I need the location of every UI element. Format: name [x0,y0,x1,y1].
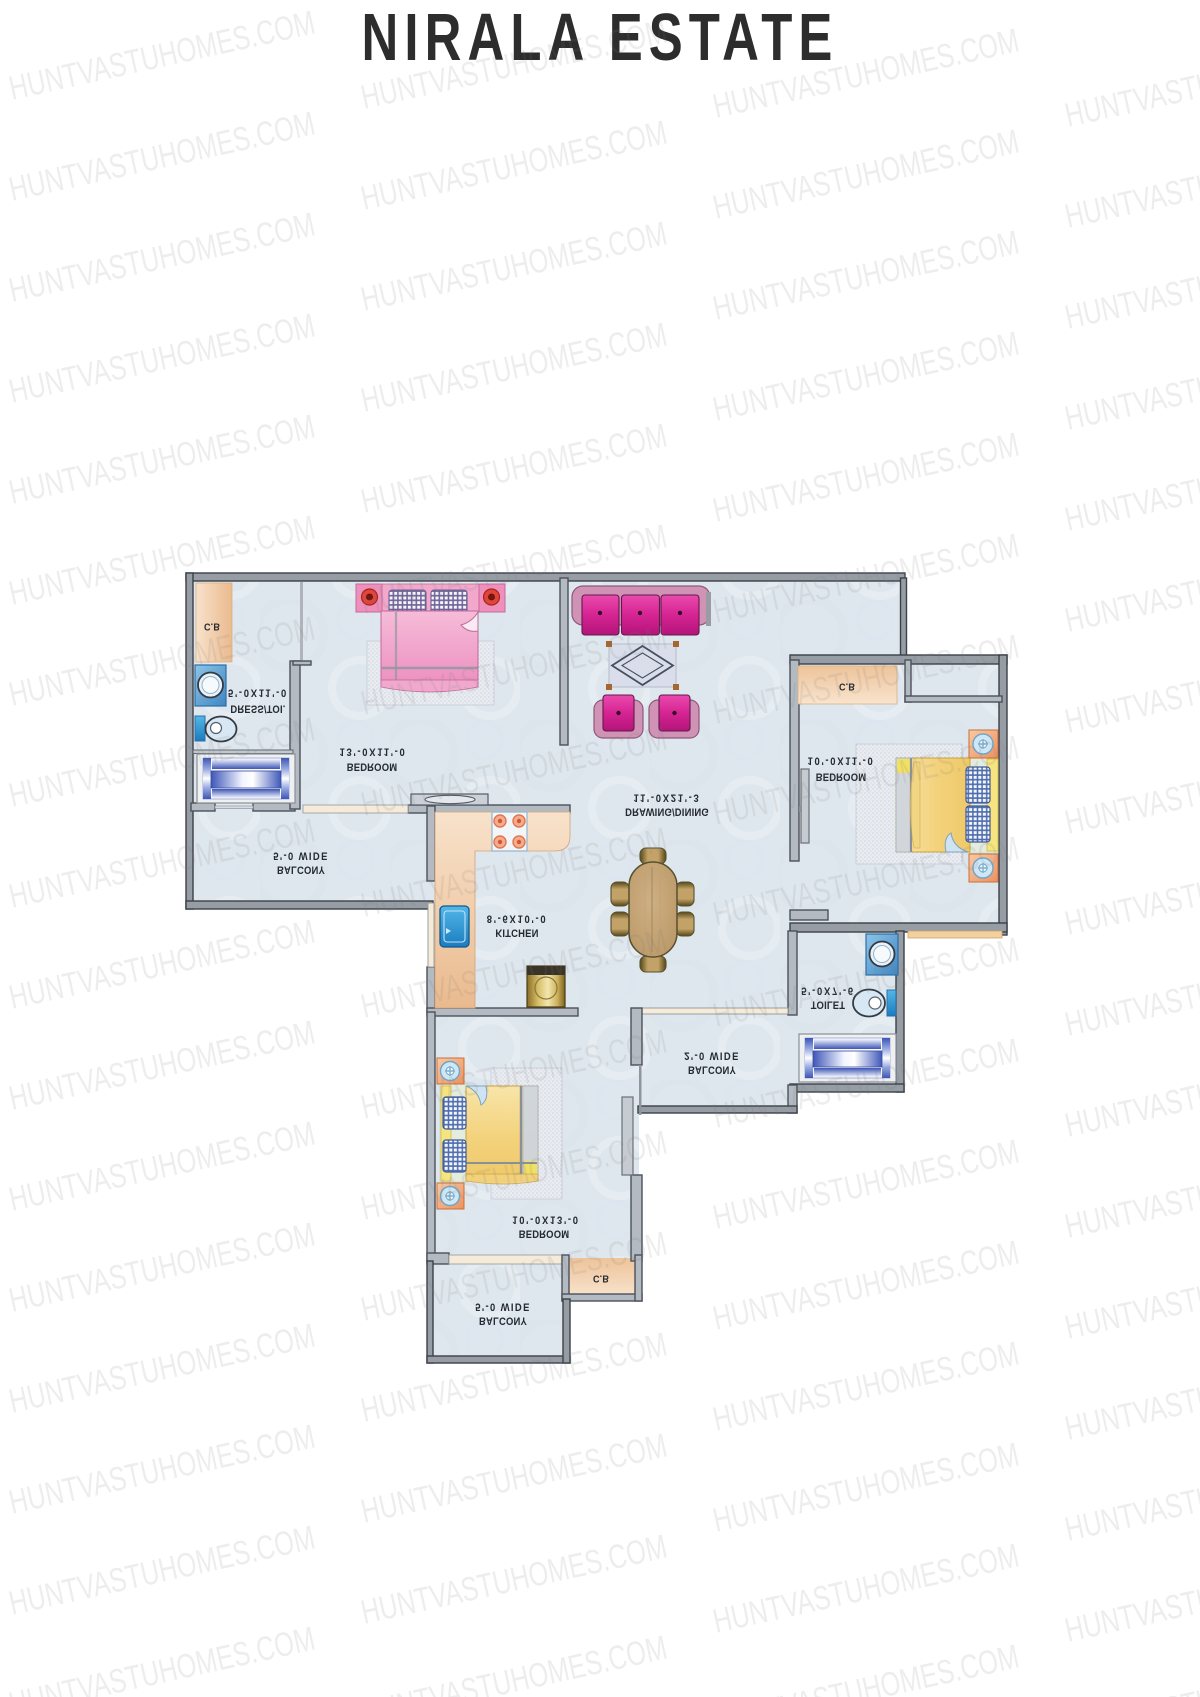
svg-text:HUNTVASTUHOMES.COM: HUNTVASTUHOMES.COM [358,1528,671,1632]
svg-text:HUNTVASTUHOMES.COM: HUNTVASTUHOMES.COM [1062,1041,1200,1145]
svg-text:HUNTVASTUHOMES.COM: HUNTVASTUHOMES.COM [6,307,319,411]
svg-text:BEDROOM: BEDROOM [347,760,398,772]
svg-text:HUNTVASTUHOMES.COM: HUNTVASTUHOMES.COM [6,4,319,108]
svg-text:11'-0X21'-3: 11'-0X21'-3 [633,791,700,803]
svg-text:HUNTVASTUHOMES.COM: HUNTVASTUHOMES.COM [358,417,671,521]
svg-text:DRESS/TOI.: DRESS/TOI. [230,702,285,714]
svg-text:HUNTVASTUHOMES.COM: HUNTVASTUHOMES.COM [710,1436,1023,1540]
svg-text:HUNTVASTUHOMES.COM: HUNTVASTUHOMES.COM [710,1234,1023,1338]
svg-text:HUNTVASTUHOMES.COM: HUNTVASTUHOMES.COM [1062,940,1200,1044]
svg-text:HUNTVASTUHOMES.COM: HUNTVASTUHOMES.COM [1062,637,1200,741]
svg-text:HUNTVASTUHOMES.COM: HUNTVASTUHOMES.COM [1062,738,1200,842]
svg-text:HUNTVASTUHOMES.COM: HUNTVASTUHOMES.COM [6,105,319,209]
svg-text:HUNTVASTUHOMES.COM: HUNTVASTUHOMES.COM [710,224,1023,328]
svg-text:HUNTVASTUHOMES.COM: HUNTVASTUHOMES.COM [710,123,1023,227]
svg-text:HUNTVASTUHOMES.COM: HUNTVASTUHOMES.COM [1062,1546,1200,1650]
svg-text:8'-6X10'-0: 8'-6X10'-0 [487,912,548,924]
svg-text:HUNTVASTUHOMES.COM: HUNTVASTUHOMES.COM [1062,1344,1200,1448]
svg-text:2'-0 WIDE: 2'-0 WIDE [684,1049,740,1061]
svg-text:HUNTVASTUHOMES.COM: HUNTVASTUHOMES.COM [1062,31,1200,135]
svg-text:HUNTVASTUHOMES.COM: HUNTVASTUHOMES.COM [1062,334,1200,438]
svg-text:5'-0X11'-0: 5'-0X11'-0 [228,686,288,698]
svg-text:HUNTVASTUHOMES.COM: HUNTVASTUHOMES.COM [6,1418,319,1522]
svg-text:HUNTVASTUHOMES.COM: HUNTVASTUHOMES.COM [6,1620,319,1697]
svg-text:HUNTVASTUHOMES.COM: HUNTVASTUHOMES.COM [1062,839,1200,943]
svg-text:HUNTVASTUHOMES.COM: HUNTVASTUHOMES.COM [1062,233,1200,337]
svg-text:HUNTVASTUHOMES.COM: HUNTVASTUHOMES.COM [710,1133,1023,1237]
svg-text:KITCHEN: KITCHEN [495,926,538,938]
svg-text:BEDROOM: BEDROOM [519,1227,570,1239]
svg-text:HUNTVASTUHOMES.COM: HUNTVASTUHOMES.COM [6,408,319,512]
svg-text:HUNTVASTUHOMES.COM: HUNTVASTUHOMES.COM [6,1216,319,1320]
svg-text:HUNTVASTUHOMES.COM: HUNTVASTUHOMES.COM [6,1519,319,1623]
svg-text:HUNTVASTUHOMES.COM: HUNTVASTUHOMES.COM [710,1335,1023,1439]
svg-text:HUNTVASTUHOMES.COM: HUNTVASTUHOMES.COM [358,316,671,420]
svg-text:HUNTVASTUHOMES.COM: HUNTVASTUHOMES.COM [358,215,671,319]
svg-text:HUNTVASTUHOMES.COM: HUNTVASTUHOMES.COM [6,1014,319,1118]
svg-text:HUNTVASTUHOMES.COM: HUNTVASTUHOMES.COM [6,913,319,1017]
svg-text:BALCONY: BALCONY [479,1314,527,1326]
svg-text:HUNTVASTUHOMES.COM: HUNTVASTUHOMES.COM [6,206,319,310]
svg-text:DRAWING/DINING: DRAWING/DINING [625,805,709,817]
svg-text:HUNTVASTUHOMES.COM: HUNTVASTUHOMES.COM [710,325,1023,429]
svg-text:HUNTVASTUHOMES.COM: HUNTVASTUHOMES.COM [1062,536,1200,640]
svg-text:HUNTVASTUHOMES.COM: HUNTVASTUHOMES.COM [358,1427,671,1531]
svg-text:HUNTVASTUHOMES.COM: HUNTVASTUHOMES.COM [358,114,671,218]
svg-text:HUNTVASTUHOMES.COM: HUNTVASTUHOMES.COM [1062,1445,1200,1549]
svg-text:HUNTVASTUHOMES.COM: HUNTVASTUHOMES.COM [710,1638,1023,1697]
svg-text:BALCONY: BALCONY [277,863,325,875]
svg-text:HUNTVASTUHOMES.COM: HUNTVASTUHOMES.COM [1062,1243,1200,1347]
svg-text:HUNTVASTUHOMES.COM: HUNTVASTUHOMES.COM [6,1317,319,1421]
svg-text:HUNTVASTUHOMES.COM: HUNTVASTUHOMES.COM [1062,1142,1200,1246]
svg-text:HUNTVASTUHOMES.COM: HUNTVASTUHOMES.COM [6,1115,319,1219]
svg-text:HUNTVASTUHOMES.COM: HUNTVASTUHOMES.COM [710,426,1023,530]
svg-text:BALCONY: BALCONY [688,1063,736,1075]
svg-text:HUNTVASTUHOMES.COM: HUNTVASTUHOMES.COM [1062,1647,1200,1697]
svg-text:HUNTVASTUHOMES.COM: HUNTVASTUHOMES.COM [1062,132,1200,236]
svg-text:10'-0X13'-0: 10'-0X13'-0 [512,1213,580,1225]
svg-text:HUNTVASTUHOMES.COM: HUNTVASTUHOMES.COM [1062,435,1200,539]
svg-text:HUNTVASTUHOMES.COM: HUNTVASTUHOMES.COM [710,1537,1023,1641]
svg-text:HUNTVASTUHOMES.COM: HUNTVASTUHOMES.COM [358,1629,671,1697]
svg-text:13'-0X11'-0: 13'-0X11'-0 [339,745,406,757]
